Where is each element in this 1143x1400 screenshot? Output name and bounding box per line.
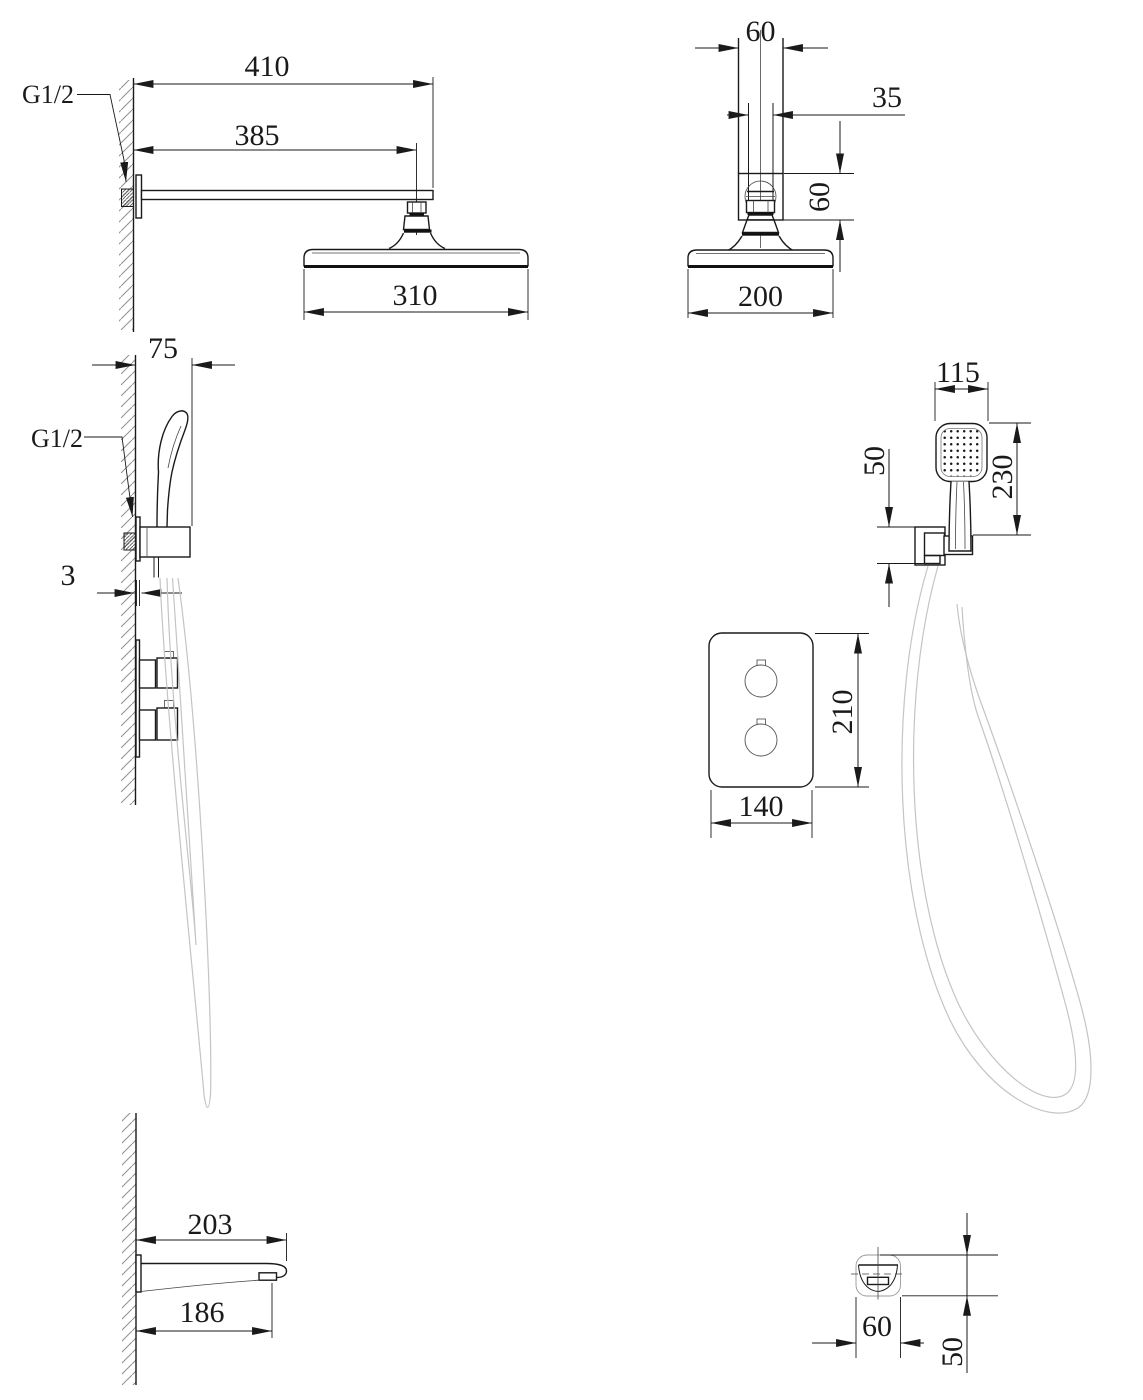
dim-label-pipe-width: 35: [872, 81, 902, 114]
shower-hose-loop: [902, 566, 1091, 1113]
dim-label-plate-thickness: 3: [61, 559, 76, 592]
shower-system-dimension-drawing: 410 385 310 G1/2 60 35: [0, 0, 1143, 1400]
dim-label-head-width: 200: [738, 280, 783, 313]
thread-size-label: G1/2: [22, 80, 74, 109]
view-hand-shower-front: 115 50 230: [858, 356, 1091, 1113]
connector-neck: [404, 216, 430, 230]
arm-wall-flange: [136, 175, 142, 218]
threaded-nipple: [122, 189, 134, 207]
dim-label-arm-length: 385: [235, 119, 280, 152]
spout-wall-flange: [136, 1255, 141, 1292]
dim-label-spout-height: 50: [936, 1337, 969, 1367]
dim-label-overall-length: 230: [986, 455, 1019, 500]
valve-knob-base: [140, 660, 156, 688]
spray-face: [941, 429, 982, 477]
hand-shower-handle: [949, 482, 971, 552]
dim-label-holder-height: 50: [858, 446, 891, 476]
spout-aerator: [259, 1273, 277, 1280]
dim-label-arm-overall: 410: [245, 50, 290, 83]
view-mixer-valve-front: 210 140: [709, 633, 869, 838]
shower-head-disc: [304, 250, 528, 267]
valve-knob-bottom: [745, 724, 777, 756]
wall-hatch: [121, 355, 135, 805]
view-spout-front: 60 50: [812, 1213, 998, 1373]
dim-label-spout-length: 203: [188, 1208, 233, 1241]
valve-cover-plate: [709, 633, 813, 787]
dim-label-top-width: 60: [746, 15, 776, 48]
valve-knob-top: [745, 665, 777, 697]
connector-nut: [408, 202, 427, 213]
valve-knob-base: [140, 710, 156, 740]
hand-shower-wand: [158, 411, 188, 527]
dim-label-spout-width: 60: [862, 1310, 892, 1343]
threaded-nipple: [124, 533, 136, 550]
wall-hatch: [122, 1113, 136, 1385]
hand-shower-bracket: [140, 527, 190, 557]
view-spout-side: 203 186: [122, 1113, 287, 1385]
drawing-svg: 410 385 310 G1/2 60 35: [0, 0, 1143, 1400]
view-hand-shower-side: 75 G1/2 3: [31, 332, 235, 1108]
view-rain-shower-front: 60 35 200 60: [688, 15, 905, 318]
dim-label-bracket-depth: 75: [148, 332, 178, 365]
view-rain-shower-side: 410 385 310 G1/2: [22, 50, 528, 332]
thread-leader-line: [77, 95, 126, 183]
dim-label-aerator-length: 186: [180, 1296, 225, 1329]
dim-label-plate-height: 210: [826, 690, 859, 735]
dim-label-head-width: 115: [936, 356, 980, 389]
connector-cone: [743, 220, 779, 233]
shower-head-front: [688, 250, 833, 267]
dim-label-plate-width: 140: [739, 790, 784, 823]
dim-label-head-diameter: 310: [393, 279, 438, 312]
shower-arm: [142, 191, 434, 200]
thread-size-label: G1/2: [31, 424, 83, 453]
dim-label-joint-height: 60: [803, 182, 836, 212]
connector-nut: [747, 201, 775, 213]
